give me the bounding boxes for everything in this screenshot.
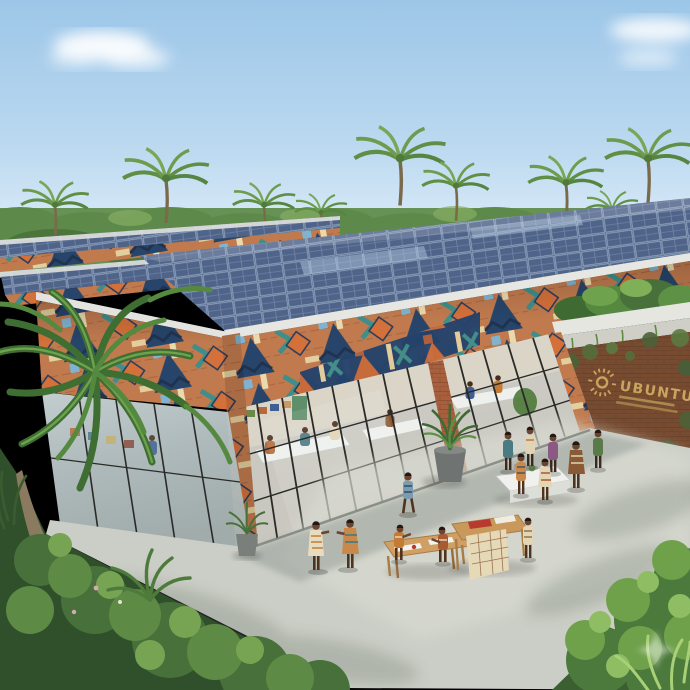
rendering-canvas: UBUNTU bbox=[0, 0, 690, 690]
flower bbox=[118, 600, 122, 604]
flower bbox=[94, 586, 99, 591]
scene: UBUNTU bbox=[0, 0, 690, 690]
flower bbox=[72, 610, 76, 614]
